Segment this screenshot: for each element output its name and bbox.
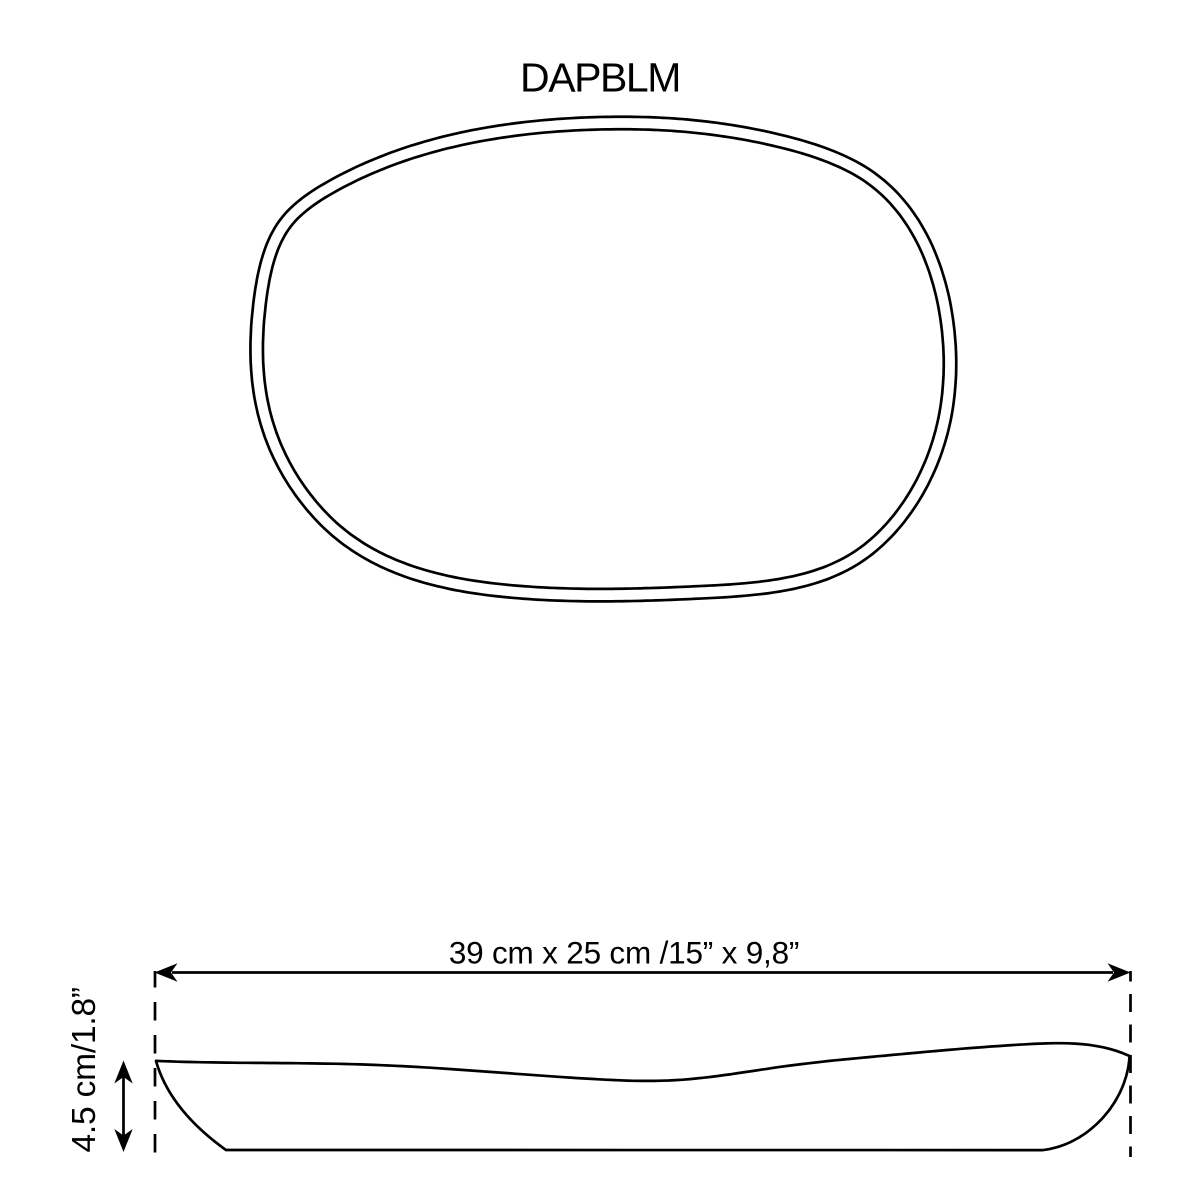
- svg-text:39 cm x 25 cm /15” x 9,8”: 39 cm x 25 cm /15” x 9,8”: [449, 935, 799, 971]
- svg-text:DAPBLM: DAPBLM: [520, 55, 680, 101]
- svg-text:4.5 cm/1.8”: 4.5 cm/1.8”: [66, 987, 103, 1152]
